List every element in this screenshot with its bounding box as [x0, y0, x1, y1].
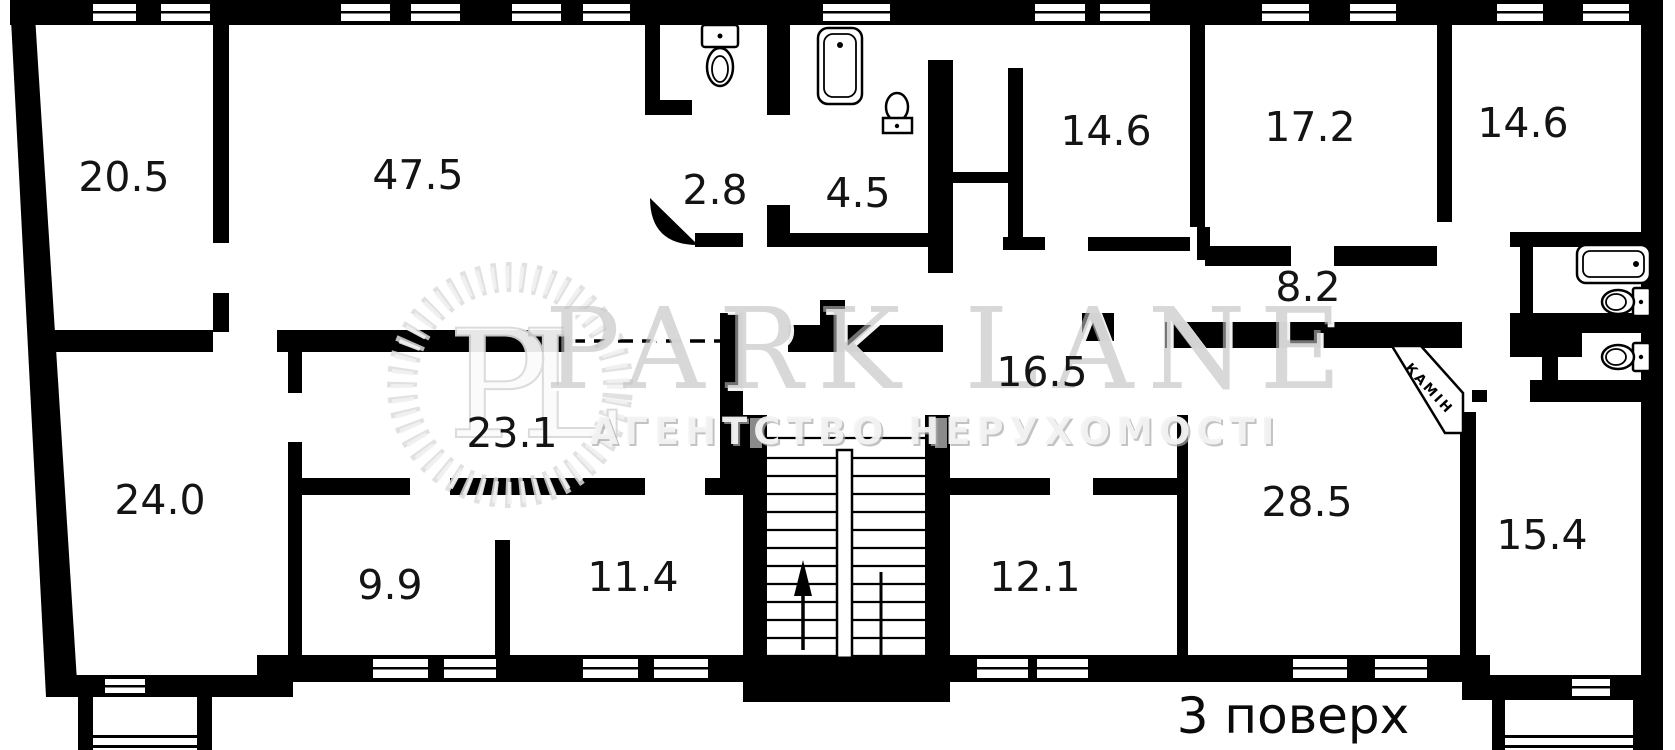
room-20-5-label: 20.5: [78, 153, 169, 201]
sink-icon: [883, 93, 912, 133]
corridor-bottom-wall: [1165, 322, 1462, 348]
floor-number-label: 3 поверх: [1177, 687, 1410, 745]
wall-left-of-stairs: [720, 313, 743, 495]
room-24-0-label: 24.0: [114, 476, 205, 524]
wall-wc-stub: [645, 100, 692, 115]
room-17-2-label: 17.2: [1264, 103, 1355, 151]
wall-121-285: [1177, 415, 1188, 655]
toilet-side-icon: [1602, 288, 1650, 316]
wall-wc-bath-a: [767, 25, 790, 115]
wall-24-23: [288, 442, 302, 675]
watermark-title: PARK LANE: [545, 285, 1356, 415]
bathroom2-left-wall: [1542, 333, 1558, 387]
shaft-foot: [1003, 237, 1045, 250]
wall-below-17-b: [1334, 246, 1437, 266]
hall-16-5-label: 16.5: [996, 348, 1087, 396]
wall-20-47-stub: [213, 293, 229, 332]
wall-wc-bottom: [695, 233, 743, 247]
shaft-left: [928, 60, 953, 273]
wall-outer-right: [1641, 0, 1663, 750]
hall-wall-notch: [820, 300, 845, 327]
watermark-laurel-wreath-icon: [388, 263, 632, 507]
door-frame-right: [935, 418, 947, 448]
hall-wall-a: [788, 325, 943, 352]
wall-bottom-step: [257, 655, 293, 697]
bathtub-horizontal-icon: [1577, 245, 1650, 283]
room-47-5-label: 47.5: [372, 151, 463, 199]
wall-bottom-under-15-4: [1462, 675, 1650, 700]
wall-below-topleft-a: [34, 330, 213, 352]
fireplace-stub: [1472, 390, 1487, 402]
room-28-5-label: 28.5: [1261, 478, 1352, 526]
wall-23-99-c: [705, 478, 720, 495]
toilet-side-icon: [1602, 343, 1650, 371]
room-2-8-label: 2.8: [682, 166, 747, 214]
fireplace-icon: КАМІН: [1392, 346, 1463, 433]
corridor-8-2-label: 8.2: [1275, 263, 1340, 311]
bathroom2-bottom-wall: [1530, 380, 1650, 402]
wall-24-23-stub: [288, 352, 302, 393]
shaft-right: [1008, 68, 1023, 250]
room-14-6-a-label: 14.6: [1060, 107, 1151, 155]
wall-23-99-a: [302, 478, 410, 495]
room-15-4-label: 15.4: [1496, 511, 1587, 559]
wall-bottom-under-24: [46, 675, 293, 697]
floor-plan-page: КАМІН PL PARK LANE PARK LANE АГЕНТСТВО Н…: [0, 0, 1675, 750]
bathtub-vertical-icon: [818, 28, 862, 104]
stairwell-left-wall: [743, 415, 767, 702]
wall-stairwell-bottom: [743, 675, 950, 702]
wall-wc-bath-b: [767, 205, 790, 247]
wall-23-99-b: [450, 478, 645, 495]
room-labels: 20.5 47.5 2.8 4.5 14.6 17.2 14.6 8.2 16.…: [78, 99, 1587, 609]
watermark-title-shadow: PARK LANE: [548, 288, 1359, 418]
wall-121-top-b: [1093, 478, 1188, 495]
stairwell-right-wall: [925, 415, 950, 702]
room-12-1-label: 12.1: [989, 553, 1080, 601]
staircase: [750, 418, 947, 660]
room-14-6-b-label: 14.6: [1477, 99, 1568, 147]
room-11-4-label: 11.4: [587, 553, 678, 601]
wall-below-14-6a: [1088, 237, 1190, 251]
bay-right-wall-b: [1633, 698, 1643, 750]
door-frame-left: [750, 418, 762, 448]
room-23-1-label: 23.1: [466, 409, 557, 457]
bay-left-wall-b: [197, 697, 212, 750]
wall-17-14b: [1437, 25, 1452, 222]
wall-20-47: [213, 25, 229, 243]
bay-left-wall-a: [78, 697, 93, 750]
bay-right-wall-a: [1492, 698, 1505, 750]
stair-stringer: [837, 450, 852, 660]
room-4-5-label: 4.5: [825, 169, 890, 217]
windows: [93, 4, 1633, 748]
staircase-up-arrow-icon: [794, 560, 812, 650]
window-icon: [93, 4, 1633, 748]
wall-99-114: [495, 540, 510, 655]
room-9-9-label: 9.9: [357, 561, 422, 609]
wall-bath-bottom: [790, 233, 930, 247]
wall-121-top-a: [950, 478, 1050, 495]
hall-pillar: [1082, 313, 1114, 341]
floor-plan: КАМІН PL PARK LANE PARK LANE АГЕНТСТВО Н…: [0, 0, 1675, 750]
shaft-cross: [953, 172, 1008, 183]
wall-28-15: [1460, 412, 1476, 680]
bathroom-right-left-wall: [1520, 232, 1533, 317]
watermark: PL PARK LANE PARK LANE АГЕНТСТВО НЕРУХОМ…: [388, 263, 1358, 507]
toilet-icon: [702, 25, 738, 86]
wall-below-topleft-b: [277, 330, 570, 352]
wall-14a-17: [1190, 25, 1205, 227]
